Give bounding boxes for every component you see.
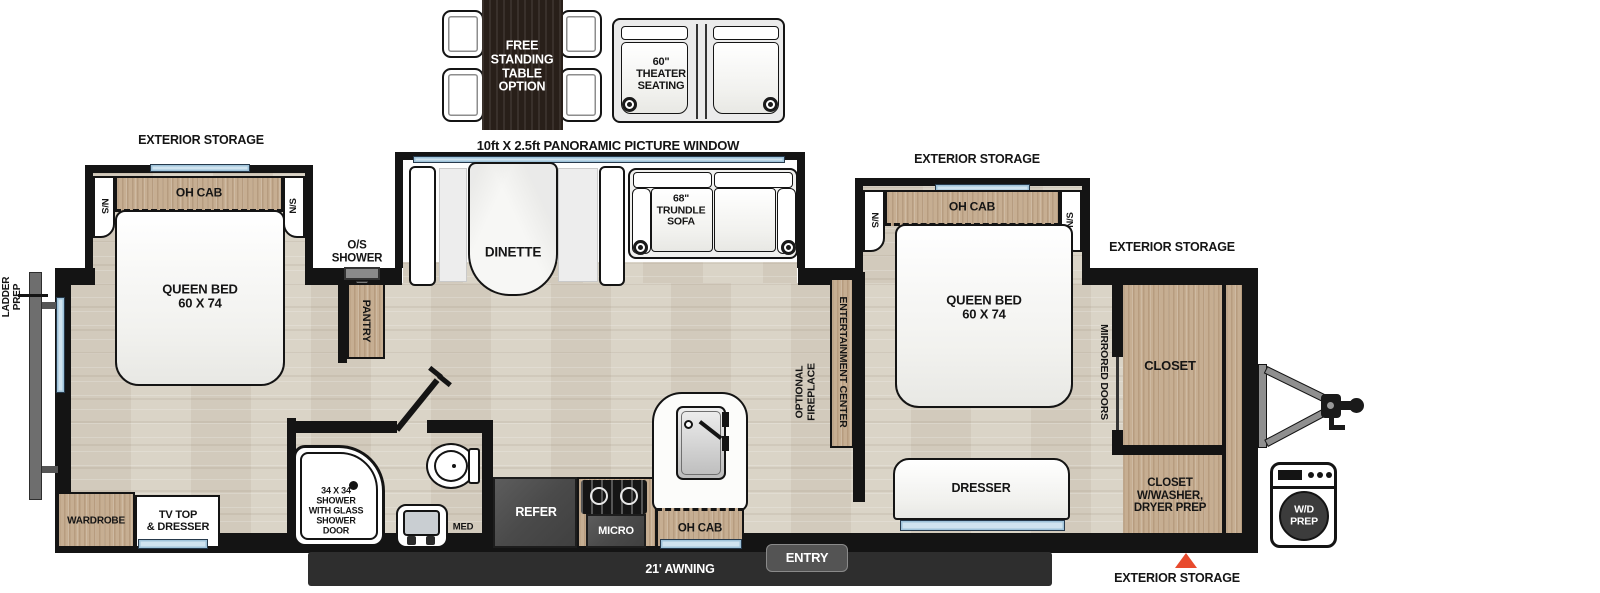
nightstand-label: N/S <box>99 198 109 213</box>
jack-crank <box>1329 425 1345 430</box>
washer-control-panel <box>1278 470 1302 480</box>
rear-queen-bed-label: QUEEN BED 60 X 74 <box>162 283 238 312</box>
washer-knob <box>1308 472 1314 478</box>
rear-overhead-cabinet-label: OH CAB <box>176 186 222 199</box>
dinette-slide-wall <box>395 152 403 268</box>
top-wall-seg <box>1085 268 1258 285</box>
med-cab-label: MED CAB <box>453 523 474 544</box>
table-chair <box>442 68 484 122</box>
dinette-label: DINETTE <box>485 246 541 261</box>
panoramic-window-label: 10ft X 2.5ft PANORAMIC PICTURE WINDOW <box>477 139 739 153</box>
sofa-back-cushion <box>714 172 793 188</box>
front-slide-wall <box>1082 178 1090 285</box>
washer-closet-label: CLOSET W/WASHER, DRYER PREP <box>1134 477 1206 515</box>
theater-console-line <box>696 24 698 119</box>
washer-knob <box>1326 472 1332 478</box>
dinette-table <box>468 162 558 296</box>
front-closet-label: CLOSET <box>1144 359 1196 373</box>
ladder-prep-label: LADDER PREP <box>1 277 23 317</box>
front-chase <box>1226 285 1242 533</box>
bottom-window <box>660 539 742 549</box>
front-wall <box>1242 272 1258 553</box>
shower-label: 34 X 34 SHOWER WITH GLASS SHOWER DOOR <box>309 486 364 535</box>
theater-seating-label: 60" THEATER SEATING <box>636 56 686 92</box>
living-bedroom-wall <box>853 272 865 502</box>
vanity-faucet <box>426 536 435 545</box>
dinette-bench <box>599 166 625 286</box>
closet-divider-wall <box>1112 445 1226 455</box>
pantry-label: PANTRY <box>360 300 372 343</box>
refrigerator-label: REFER <box>515 506 556 520</box>
theater-seat-back-right <box>713 26 779 40</box>
free-standing-table-label: FREE STANDING TABLE OPTION <box>491 40 554 95</box>
tongue-crossbar <box>1258 364 1267 448</box>
sofa-back-cushion <box>633 172 712 188</box>
dinette-slide-wall <box>797 152 805 268</box>
theater-cupholder <box>622 97 637 112</box>
cooktop-burner <box>590 487 608 505</box>
sofa-cupholder <box>781 240 796 255</box>
optional-fireplace-label: OPTIONAL FIREPLACE <box>794 363 817 421</box>
vanity-sink <box>403 510 440 536</box>
rear-slide-wall <box>305 165 313 275</box>
exterior-storage-label: EXTERIOR STORAGE <box>1109 241 1235 255</box>
exterior-storage-label: EXTERIOR STORAGE <box>1114 572 1240 586</box>
theater-seat-back-left <box>621 26 688 40</box>
front-dresser-label: DRESSER <box>951 482 1010 496</box>
mirrored-door-line <box>1116 357 1119 430</box>
outside-shower-label: O/S SHOWER <box>332 239 383 264</box>
exterior-storage-label: EXTERIOR STORAGE <box>914 153 1040 167</box>
sofa-cupholder <box>633 240 648 255</box>
exterior-storage-arrow <box>1175 553 1197 568</box>
rv-floorplan: FREE STANDING TABLE OPTION 60" THEATER S… <box>0 0 1600 593</box>
panoramic-window <box>413 156 785 163</box>
bathroom-wall-top <box>287 421 397 433</box>
toilet-dot <box>452 464 456 468</box>
ladder-bar <box>29 272 42 500</box>
table-chair <box>442 10 484 58</box>
table-chair <box>560 10 602 58</box>
entry-label: ENTRY <box>786 551 829 565</box>
sink-faucet-base <box>722 436 729 451</box>
dinette-platform <box>558 168 598 282</box>
washer-panel-line <box>1272 486 1335 489</box>
nightstand-label: N/S <box>289 198 299 213</box>
bathroom-wall-right <box>482 420 493 553</box>
dinette-bench <box>409 166 436 286</box>
hitch-ball <box>1349 398 1364 413</box>
table-chair <box>560 68 602 122</box>
dinette-platform <box>439 168 467 282</box>
theater-cupholder <box>763 97 778 112</box>
tv-top-dresser-label: TV TOP & DRESSER <box>147 509 209 533</box>
bottom-window <box>900 520 1065 531</box>
theater-console-line <box>705 24 707 119</box>
sink-drain <box>684 420 693 429</box>
mirrored-doors-wall <box>1112 285 1123 357</box>
awning-label: 21' AWNING <box>645 563 714 577</box>
sofa-seat <box>714 188 776 252</box>
entertainment-center-label: ENTERTAINMENT CENTER <box>836 296 848 427</box>
outside-shower-fixture <box>344 267 380 280</box>
microwave-label: MICRO <box>598 525 634 537</box>
front-queen-bed-label: QUEEN BED 60 X 74 <box>946 294 1022 323</box>
wd-prep-label: W/D PREP <box>1290 504 1318 527</box>
trundle-sofa-label: 68" TRUNDLE SOFA <box>657 194 706 229</box>
washer-knob <box>1317 472 1323 478</box>
front-slide-wall <box>855 178 863 273</box>
exterior-storage-label: EXTERIOR STORAGE <box>138 134 264 148</box>
sink-faucet-base <box>722 412 729 427</box>
front-overhead-cabinet-label: OH CAB <box>949 200 995 213</box>
ladder-bracket <box>42 466 58 473</box>
mirrored-doors-label: MIRRORED DOORS <box>1097 324 1109 420</box>
rear-slide-wall <box>85 165 93 275</box>
wardrobe-label: WARDROBE <box>67 516 125 527</box>
bottom-window <box>138 539 208 549</box>
toilet-seat <box>434 450 468 482</box>
toilet-tank <box>468 448 480 484</box>
nightstand-label: N/S <box>869 212 879 227</box>
pantry-wall-stub <box>338 283 347 363</box>
hitch-coupler-hole <box>1327 402 1334 409</box>
kitchen-overhead-cab-label: OH CAB <box>678 523 722 536</box>
rear-slide-window <box>150 164 250 172</box>
cooktop-burner <box>620 487 638 505</box>
vanity-faucet <box>407 536 416 545</box>
rear-window <box>56 297 65 393</box>
tongue-beam <box>1264 407 1330 447</box>
